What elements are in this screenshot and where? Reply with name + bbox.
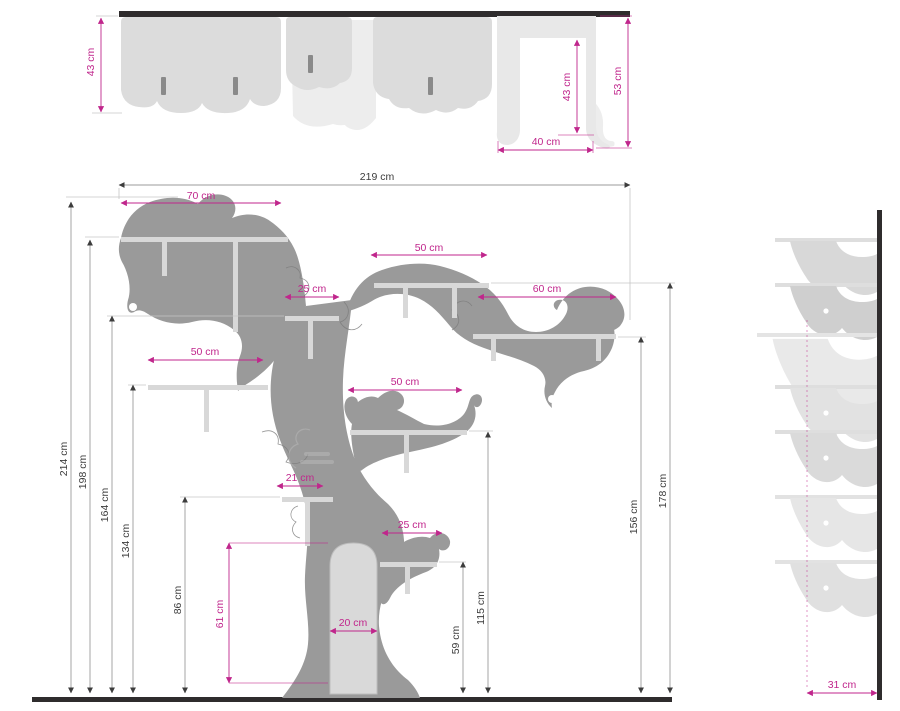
dim-shelf-21: 21 cm — [286, 472, 315, 484]
technical-drawing-tree-bookshelf: 43 cm 43 cm 53 cm 40 cm — [0, 0, 900, 711]
dim-overall-width-219: 219 cm — [360, 171, 395, 183]
dim-width-40: 40 cm — [532, 136, 561, 148]
side-view: 31 cm — [757, 210, 882, 700]
front-view: 219 cm 70 cm 50 cm 25 cm 60 cm 50 cm 50 … — [32, 171, 675, 702]
dim-depth-31: 31 cm — [828, 679, 857, 691]
dim-height-86: 86 cm — [172, 585, 184, 614]
side-shelf-profiles — [757, 238, 877, 617]
dim-height-156: 156 cm — [628, 500, 640, 535]
dim-shelf-50-top: 50 cm — [415, 242, 444, 254]
dim-door-height-61: 61 cm — [214, 599, 226, 628]
slot — [308, 55, 313, 73]
slot — [161, 77, 166, 95]
slot — [233, 77, 238, 95]
dim-height-214: 214 cm — [58, 442, 70, 477]
plan-side-panel-profile — [497, 16, 610, 149]
slot — [428, 77, 433, 95]
dim-height-59: 59 cm — [450, 625, 462, 654]
dim-height-115: 115 cm — [475, 591, 487, 625]
dim-shelf-50-mid: 50 cm — [391, 376, 420, 388]
dim-shelf-25-low: 25 cm — [398, 519, 427, 531]
dim-depth-43-left: 43 cm — [85, 47, 97, 76]
tree-silhouette — [119, 194, 625, 698]
wall-line-side-view — [877, 210, 882, 700]
dim-height-164: 164 cm — [99, 488, 111, 523]
branch-tip-hole — [129, 303, 137, 311]
branch-tip-hole — [548, 395, 556, 403]
dim-height-198: 198 cm — [77, 455, 89, 490]
dim-shelf-25: 25 cm — [298, 283, 327, 295]
dim-shelf-60: 60 cm — [533, 283, 562, 295]
top-view: 43 cm 43 cm 53 cm 40 cm — [85, 11, 632, 153]
dim-door-width-20: 20 cm — [339, 617, 368, 629]
dim-shelf-50-left: 50 cm — [191, 346, 220, 358]
dim-depth-53: 53 cm — [612, 66, 624, 95]
dim-height-178: 178 cm — [657, 474, 669, 509]
dim-height-134: 134 cm — [120, 524, 132, 559]
dim-shelf-70: 70 cm — [187, 190, 216, 202]
dim-depth-43-inner: 43 cm — [561, 72, 573, 101]
